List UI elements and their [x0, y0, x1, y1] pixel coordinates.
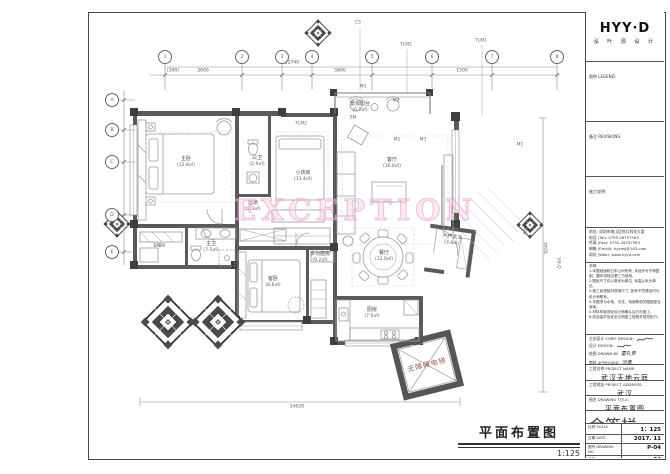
axis-label-m1: M1: [517, 143, 524, 148]
room-label-dining-room: 餐厅(12.0㎡): [375, 250, 393, 262]
drawing-no-value: P-04: [622, 444, 664, 455]
brand-sub: 泓 叶 源 设 计: [589, 38, 661, 45]
axis-label-tlm1: TLM1: [475, 39, 487, 44]
room-label-guest-bedroom: 客卧(8.6㎡): [265, 276, 280, 288]
titleblock-statement: 说明: 1.本图纸版权归本公司所有, 未经许可不得复制、翻印或转交第三方使用。 …: [586, 263, 664, 335]
statement-line: 4.本图须与水电、天花、地面等相关图纸配合使用。: [589, 300, 661, 310]
project-name: 武汉天地云庭: [589, 373, 661, 382]
grid-bubble-c: C: [105, 155, 119, 169]
dim-seg3: 1500: [456, 69, 467, 74]
dim-bottom-total: 14020: [290, 405, 304, 410]
field-inner-signature: 会签栏 INNER SIGNATURE:: [586, 411, 664, 424]
grid-bubble-3: 3: [275, 50, 289, 64]
sign-row-chief: 主创设计 CHIEF DESIGN:: [589, 336, 661, 343]
meta-row-drawing-no: 图号 DRAWING NO. P-04: [586, 444, 664, 456]
room-label-multi-room: 多功能房(9.2㎡): [310, 251, 330, 263]
room-label-master-bath: 主卫(7.5㎡): [203, 241, 218, 253]
floorplan-sheet: { "sheet": { "watermark": "EXCEPTION", "…: [0, 0, 670, 474]
statement-line: 3.施工前请核对现场尺寸, 如有不符请及时与设计师联系。: [589, 289, 661, 299]
grid-bubble-1: 1: [158, 50, 172, 64]
revisions-label: 备注 REVISIONS:: [589, 134, 621, 139]
axis-label-m2-a: M2: [393, 99, 400, 104]
meta-row-scale: 比例 SCALE 1：125: [586, 424, 664, 435]
titleblock: HYY·D 泓 叶 源 设 计 图例 LEGEND: 备注 REVISIONS:…: [585, 12, 664, 458]
legend-label: 图例 LEGEND:: [589, 74, 616, 79]
grid-bubble-2: 2: [235, 50, 249, 64]
axis-label-m2-b: M2: [394, 138, 401, 143]
axis-label-c5: C5: [355, 21, 361, 26]
axis-label-w1: W1: [522, 227, 527, 234]
titleblock-notes: 施工说明:: [586, 177, 664, 228]
titleblock-signatures: 主创设计 CHIEF DESIGN: 设计 DESIGN: 绘图 DRAWN B…: [586, 335, 664, 365]
sign-row-design: 设计 DESIGN:: [589, 343, 661, 350]
titleblock-meta: 比例 SCALE 1：125 日期 DATE. 2017. 11 图号 DRAW…: [586, 424, 664, 458]
axis-label-sm: SM: [350, 116, 357, 121]
axis-label-tlm2-room: TLM2: [295, 122, 307, 127]
room-label-master-bedroom: 主卧(12.8㎡): [177, 156, 195, 168]
title-rule-thin: [458, 447, 580, 448]
grid-bubble-8: 8: [550, 50, 564, 64]
scale-value: 1：125: [622, 424, 664, 434]
room-label-kitchen: 厨房(7.0㎡): [364, 307, 379, 319]
statement-line: 2.图纸尺寸均以毫米为单位, 标高以米为单位。: [589, 279, 661, 289]
grid-bubble-4: 4: [305, 50, 319, 64]
bottom-scale: 1:125: [458, 449, 580, 458]
page-value: 04: [622, 456, 664, 458]
axis-label-vnq: VN.Q: [556, 257, 561, 268]
room-label-cloakroom: 衣帽间: [153, 242, 165, 247]
dim-seg2: 5800: [334, 69, 345, 74]
dim-note: (300): [167, 69, 179, 74]
meta-row-date: 日期 DATE. 2017. 11: [586, 435, 664, 444]
axis-label-tlm2-top: TLM2: [400, 43, 412, 48]
statement-line: 6.成品保护及安全文明施工按相关规范执行。: [589, 315, 661, 320]
grid-bubble-d: D: [105, 208, 119, 222]
room-label-foyer: 入户玄关(3.8㎡): [441, 232, 463, 247]
signature-scribble: [616, 343, 632, 350]
grid-bubble-6: 6: [425, 50, 439, 64]
room-label-living-room: 客厅(16.0㎡): [383, 157, 401, 169]
contact-web: 网址 (Web): www.hyyd.com: [589, 252, 661, 258]
grid-bubble-5: 5: [365, 50, 379, 64]
titleblock-revisions: 备注 REVISIONS:: [586, 122, 664, 177]
project-address: 武汉: [589, 389, 661, 397]
axis-label-m3-b: M3: [420, 138, 427, 143]
bottom-title: 平面布置图: [458, 422, 580, 441]
notes-label: 施工说明:: [589, 189, 606, 194]
dim-right-total: 9240: [545, 242, 550, 253]
bottom-title-block: 平面布置图 1:125: [458, 422, 580, 458]
title-rule-thick: [458, 443, 580, 445]
titleblock-contact: 地址: 深圳市南山区蛇口科技大厦 电话 (Tel): 0755-26757563…: [586, 228, 664, 263]
titleblock-legend: 图例 LEGEND:: [586, 62, 664, 122]
field-drawing-title: 图名 DRAWING TITLE: 平面布置图: [586, 396, 664, 411]
grid-bubble-e: E: [105, 245, 119, 259]
axis-label-m3-a: M3: [360, 85, 367, 90]
grid-bubble-7: 7: [485, 50, 499, 64]
statement-line: 1.本图纸版权归本公司所有, 未经许可不得复制、翻印或转交第三方使用。: [589, 269, 661, 279]
grid-bubble-a: A: [105, 93, 119, 107]
field-project-address: 工程地址 PROJECT ADDRESS: 武汉: [586, 381, 664, 396]
dim-seg1: 3600: [197, 69, 208, 74]
watermark: EXCEPTION: [234, 193, 477, 227]
room-label-balcony: 景观阳台(6.1㎡): [350, 101, 370, 113]
field-project-name: 工程名称 PROJECT NAME: 武汉天地云庭: [586, 365, 664, 381]
grid-bubble-b: B: [105, 123, 119, 137]
sign-row-drawn: 绘图 DRAWN BY: 雷礼贵: [589, 350, 661, 359]
meta-row-page: 页次 04: [586, 456, 664, 458]
signature-scribble: [636, 336, 654, 343]
date-value: 2017. 11: [622, 435, 664, 443]
drawing-title: 平面布置图: [589, 404, 661, 412]
room-label-kids-room: 小孩房(13.4㎡): [294, 170, 312, 182]
entry-foyer: [424, 224, 476, 278]
titleblock-logo: HYY·D 泓 叶 源 设 计: [586, 12, 664, 62]
room-label-guest-bath: 公卫(2.9㎡): [249, 155, 264, 167]
brand-logo: HYY·D: [589, 21, 661, 36]
